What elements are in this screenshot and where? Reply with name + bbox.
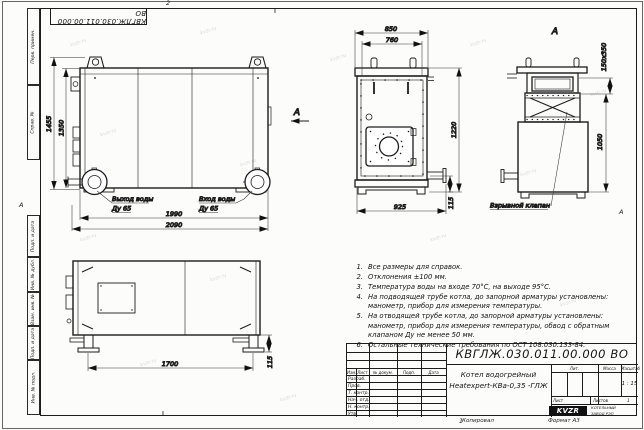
lifting-lug bbox=[526, 58, 531, 67]
bolt bbox=[370, 161, 372, 163]
top-plate bbox=[355, 68, 428, 76]
bolt bbox=[131, 309, 132, 310]
water-inlet-label: Вход воды bbox=[199, 195, 235, 203]
tb-row-utv: Утв. bbox=[348, 412, 357, 417]
side-fitting bbox=[73, 154, 80, 166]
inspection-hole bbox=[366, 114, 372, 120]
dim-1700: 1700 bbox=[162, 360, 179, 368]
kvzr-logo: KVZR bbox=[549, 406, 587, 416]
note-number: 3. bbox=[348, 283, 368, 292]
water-outlet-flange bbox=[82, 170, 107, 195]
bottom-plate bbox=[355, 180, 428, 187]
tb-row-nachotd: Нач. отд. bbox=[348, 398, 370, 403]
tb-col-list: Лист bbox=[356, 370, 369, 375]
skirt bbox=[358, 187, 425, 194]
hatch-opening bbox=[98, 283, 135, 313]
dim-1050: 1050 bbox=[596, 134, 604, 151]
leg-base bbox=[243, 348, 264, 352]
side-view: 850 760 1220 925 115 bbox=[355, 25, 462, 214]
note-text: Все размеры для справок. bbox=[368, 263, 630, 272]
tb-company: КОТЕЛЬНЫЙ ЗАВОД РЭП bbox=[591, 405, 637, 416]
tb-scale-label: Масштаб bbox=[621, 366, 638, 371]
bolt bbox=[100, 309, 101, 310]
bolt bbox=[257, 77, 259, 79]
note-text: Температура воды на входе 70°С, на выход… bbox=[368, 283, 630, 292]
technical-notes: 1.Все размеры для справок. 2.Отклонения … bbox=[348, 263, 630, 351]
side-fitting bbox=[66, 295, 73, 309]
tb-scale-value: 1 : 15 bbox=[621, 381, 638, 387]
water-outlet-label: Выход воды bbox=[112, 195, 153, 203]
front-dimensions bbox=[50, 58, 268, 232]
dim-1220: 1220 bbox=[450, 122, 458, 139]
side-fitting bbox=[66, 276, 73, 288]
dim-height-inner: 1350 bbox=[58, 120, 66, 137]
note-item: 4.На подводящей трубе котла, до запорной… bbox=[348, 293, 630, 311]
boiler-top-outline bbox=[73, 261, 260, 335]
title-block: Изм. Лист № докум. Подп. Дата Разраб. Пр… bbox=[346, 343, 637, 416]
note-text: На подводящей трубе котла, до запорной а… bbox=[368, 293, 630, 311]
top-dimensions bbox=[88, 335, 272, 371]
side-bracket bbox=[71, 77, 80, 91]
note-number: 4. bbox=[348, 293, 368, 311]
dim-850: 850 bbox=[385, 25, 397, 33]
upper-body bbox=[527, 73, 578, 93]
note-item: 2.Отклонения ±100 мм. bbox=[348, 273, 630, 282]
top-plate bbox=[517, 67, 587, 73]
corner-tick bbox=[82, 267, 93, 272]
lifting-lug bbox=[410, 58, 416, 68]
bracket-hole bbox=[73, 82, 78, 87]
lug-hole bbox=[254, 59, 260, 65]
leg-base bbox=[78, 348, 99, 352]
rear-view: А 150х350 1050 bbox=[490, 27, 613, 210]
view-a-title: А bbox=[551, 27, 558, 37]
bolt bbox=[370, 131, 372, 133]
tb-product-name: Котел водогрейный Heatexpert-КВа-0,35 -Г… bbox=[446, 364, 551, 417]
tb-col-doc: № докум. bbox=[369, 370, 397, 375]
corner-tick bbox=[240, 267, 251, 272]
water-inlet-flange bbox=[245, 170, 270, 195]
dim-760: 760 bbox=[386, 36, 398, 44]
side-fitting bbox=[73, 127, 80, 138]
dim-115: 115 bbox=[266, 356, 274, 368]
side-fitting bbox=[73, 140, 80, 152]
dim-flue-150x350: 150х350 bbox=[600, 43, 608, 72]
pipe-flange bbox=[501, 170, 504, 183]
note-item: 3.Температура воды на входе 70°С, на вых… bbox=[348, 283, 630, 292]
format-label: Формат А3 bbox=[548, 418, 580, 424]
lifting-lug bbox=[574, 58, 579, 67]
flue-inner bbox=[535, 79, 570, 89]
pipe-flange bbox=[443, 169, 446, 183]
tb-row-razrab: Разраб. bbox=[348, 377, 366, 382]
note-number: 1. bbox=[348, 263, 368, 272]
lug-hole bbox=[92, 59, 98, 65]
tb-product-line2: Heatexpert-КВа-0,35 -ГЛЖ bbox=[446, 381, 551, 392]
tb-sheet-label: Лист bbox=[553, 398, 563, 403]
copied-label: Копировал bbox=[462, 418, 494, 424]
view-a-arrow-label: А bbox=[293, 108, 300, 118]
tb-col-podp: Подп. bbox=[397, 370, 421, 375]
note-item: 5.На отводящей трубе котла, до запорной … bbox=[348, 312, 630, 339]
bolt bbox=[408, 161, 410, 163]
dim-115: 115 bbox=[447, 197, 455, 209]
pipe-stub bbox=[70, 338, 84, 342]
dim-925: 925 bbox=[394, 203, 406, 211]
side-fitting bbox=[67, 319, 71, 323]
boiler-body bbox=[80, 68, 268, 188]
tb-lit-label: Лит. bbox=[551, 366, 598, 371]
dim-width-outer: 2090 bbox=[166, 221, 183, 229]
burner-plate bbox=[366, 127, 413, 166]
lower-body bbox=[518, 122, 588, 192]
bolt bbox=[131, 285, 132, 286]
tb-company-line2: ЗАВОД РЭП bbox=[591, 411, 637, 417]
tb-sheets-label: Листов bbox=[593, 398, 608, 403]
dim-width-inner: 1990 bbox=[166, 210, 183, 218]
corner-tick bbox=[240, 324, 251, 329]
front-view: 1455 1350 1990 2090 Выход воды Ду 65 Вхо… bbox=[45, 57, 309, 231]
tb-row-nkontr: Н. контр. bbox=[348, 405, 370, 410]
tb-row-prov: Пров. bbox=[348, 384, 361, 389]
bolt bbox=[408, 131, 410, 133]
leg bbox=[249, 335, 258, 348]
corner-tick bbox=[82, 324, 93, 329]
top-view: 1700 115 bbox=[66, 261, 274, 371]
tb-sheets-value: 1 bbox=[627, 398, 630, 403]
water-inlet-dn: Ду 65 bbox=[198, 205, 218, 213]
note-item: 1.Все размеры для справок. bbox=[348, 263, 630, 272]
note-number: 5. bbox=[348, 312, 368, 339]
tb-doc-number: КВГЛЖ.030.011.00.000 ВО bbox=[446, 344, 638, 364]
bolt bbox=[100, 285, 101, 286]
bolt bbox=[94, 77, 96, 79]
note-text: Отклонения ±100 мм. bbox=[368, 273, 630, 282]
tb-row-tkontr: Т. контр. bbox=[348, 391, 369, 396]
tb-mass-label: Масса bbox=[598, 366, 621, 371]
tb-product-line1: Котел водогрейный bbox=[446, 370, 551, 381]
pipe-stub bbox=[233, 338, 249, 342]
explosion-valve-label: Взрывной клапан bbox=[490, 202, 550, 210]
dim-height-outer: 1455 bbox=[45, 116, 53, 133]
leg bbox=[84, 335, 93, 348]
note-text: На отводящей трубе котла, до запорной ар… bbox=[368, 312, 630, 339]
lifting-lug bbox=[371, 58, 377, 68]
water-outlet-dn: Ду 65 bbox=[111, 205, 131, 213]
tb-col-izm: Изм. bbox=[347, 370, 356, 375]
tb-col-data: Дата bbox=[421, 370, 446, 375]
note-number: 2. bbox=[348, 273, 368, 282]
